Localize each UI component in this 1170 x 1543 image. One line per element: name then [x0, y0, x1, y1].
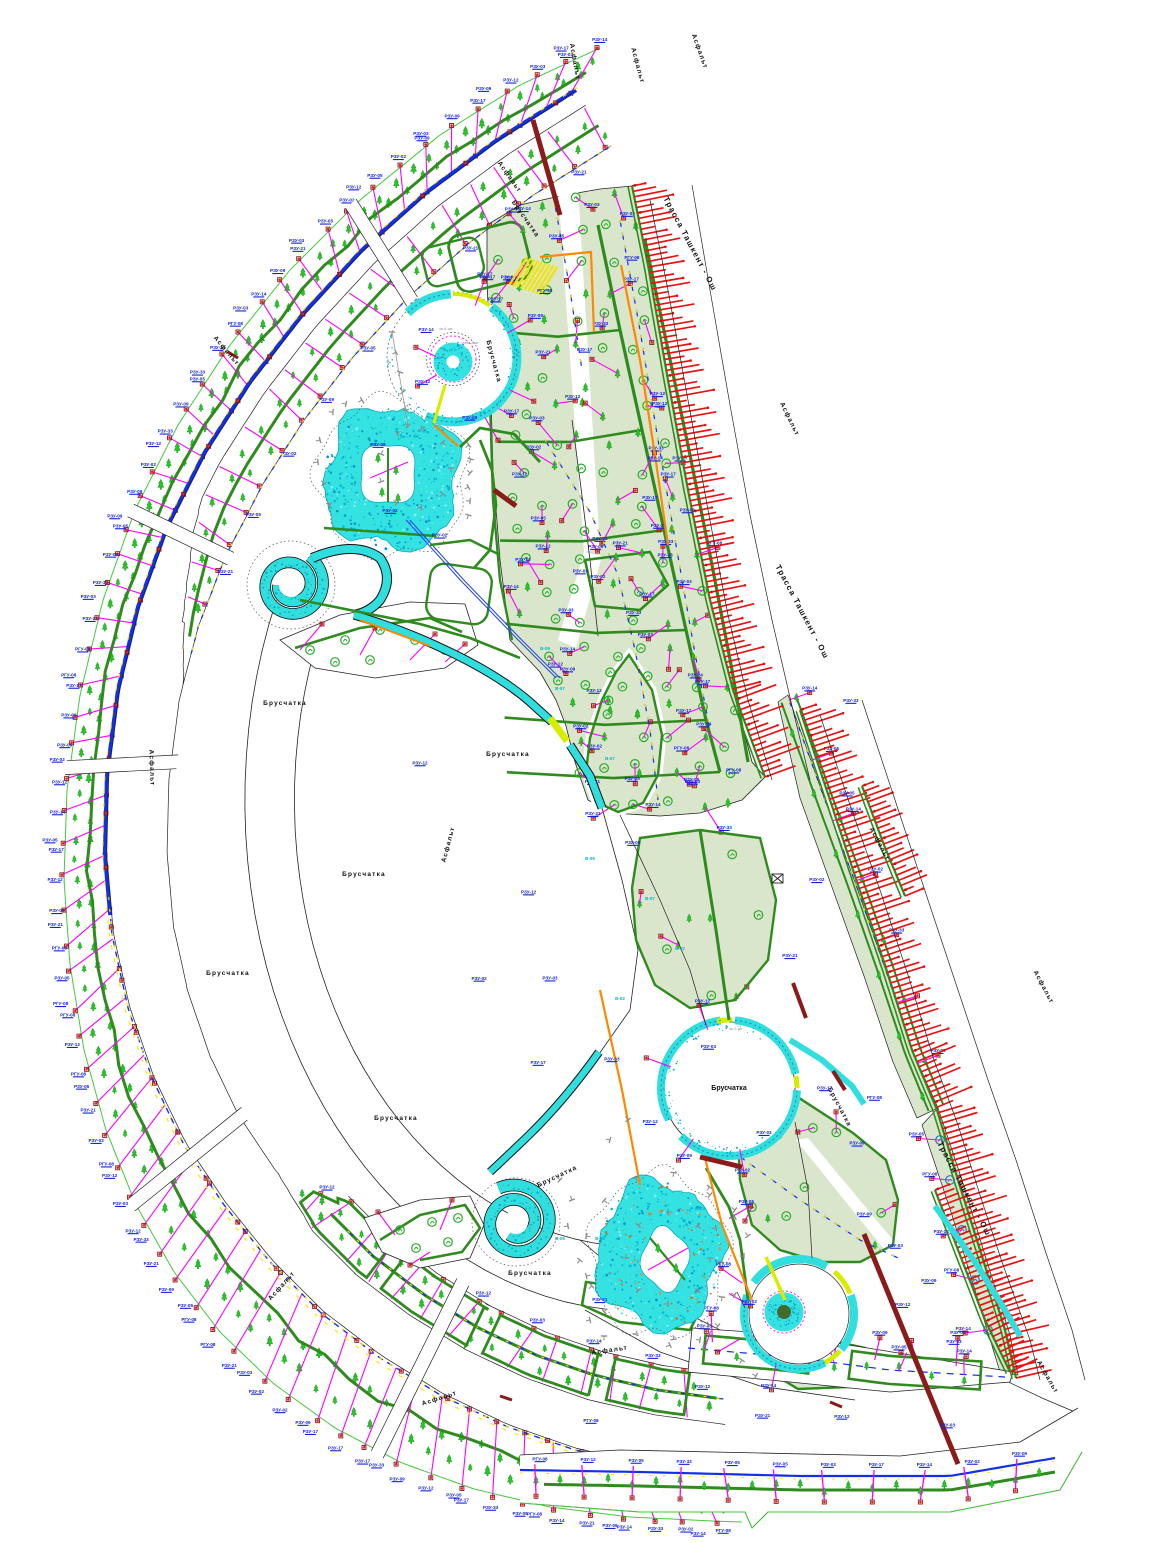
- svg-text:РЗУ-05: РЗУ-05: [839, 791, 855, 796]
- svg-text:РЗУ-21: РЗУ-21: [144, 1261, 160, 1266]
- svg-text:РЗУ-05: РЗУ-05: [49, 908, 65, 913]
- svg-text:РЗУ-02: РЗУ-02: [281, 451, 297, 456]
- svg-text:Брусчатка: Брусчатка: [711, 1085, 747, 1092]
- svg-text:РЗУ-17: РЗУ-17: [303, 1429, 319, 1434]
- svg-text:РГУ-08: РГУ-08: [228, 321, 244, 326]
- svg-text:РЗУ-09: РЗУ-09: [127, 489, 143, 494]
- svg-text:РЗУ-12: РЗУ-12: [102, 1173, 118, 1178]
- svg-text:РГУ-08: РГУ-08: [75, 647, 91, 652]
- svg-text:РЗУ-03: РЗУ-03: [113, 1201, 129, 1206]
- svg-text:РЗУ-12: РЗУ-12: [695, 1384, 711, 1389]
- svg-text:РЗУ-05: РЗУ-05: [367, 173, 383, 178]
- svg-text:РГУ-08: РГУ-08: [99, 1162, 115, 1167]
- svg-text:РЗУ-09: РЗУ-09: [319, 397, 335, 402]
- svg-text:РЗУ-33: РЗУ-33: [676, 1459, 692, 1464]
- svg-text:РЗУ-17: РЗУ-17: [49, 847, 65, 852]
- svg-text:РЗУ-02: РЗУ-02: [272, 1407, 288, 1412]
- svg-text:ск.4 шт: ск.4 шт: [439, 326, 452, 331]
- svg-text:РЗУ-09: РЗУ-09: [872, 1330, 888, 1335]
- svg-text:РЗУ-05: РЗУ-05: [318, 219, 334, 224]
- svg-text:РЗУ-03: РЗУ-03: [680, 507, 696, 512]
- svg-text:РЗУ-14: РЗУ-14: [645, 802, 661, 807]
- svg-text:РЗУ-17: РЗУ-17: [480, 274, 496, 279]
- svg-text:РЗУ-02: РЗУ-02: [590, 574, 606, 579]
- svg-text:РЗУ-05: РЗУ-05: [360, 346, 376, 351]
- svg-text:В-09: В-09: [595, 1236, 605, 1241]
- svg-text:РЗУ-03: РЗУ-03: [542, 976, 558, 981]
- svg-text:Асфальт: Асфальт: [147, 750, 155, 787]
- svg-text:РЗУ-17: РЗУ-17: [817, 1085, 833, 1090]
- svg-text:РЗУ-21: РЗУ-21: [463, 246, 479, 251]
- svg-text:РЗУ-12: РЗУ-12: [346, 185, 362, 190]
- svg-text:Брусчатка: Брусчатка: [508, 1270, 552, 1277]
- svg-text:РЗУ-09: РЗУ-09: [57, 742, 73, 747]
- svg-text:РГУ-08: РГУ-08: [532, 1456, 548, 1461]
- svg-text:РГУ-08: РГУ-08: [716, 1528, 732, 1533]
- svg-text:РЗУ-12: РЗУ-12: [895, 1302, 911, 1307]
- svg-text:РЗУ-12: РЗУ-12: [146, 441, 162, 446]
- svg-text:РЗУ-33: РЗУ-33: [645, 1353, 661, 1358]
- svg-text:РЗУ-33: РЗУ-33: [369, 1463, 385, 1468]
- svg-text:РЗУ-02: РЗУ-02: [249, 1389, 265, 1394]
- svg-text:РЗУ-05: РЗУ-05: [531, 516, 547, 521]
- svg-text:РЗУ-17: РЗУ-17: [676, 708, 692, 713]
- svg-text:РЗУ-33: РЗУ-33: [158, 429, 174, 434]
- svg-text:РГУ-08: РГУ-08: [537, 288, 553, 293]
- svg-text:РЗУ-05: РЗУ-05: [74, 1084, 90, 1089]
- svg-text:РЗУ-12: РЗУ-12: [52, 779, 68, 784]
- svg-text:РЗУ-05: РЗУ-05: [113, 523, 129, 528]
- svg-text:РЗУ-12: РЗУ-12: [503, 78, 519, 83]
- svg-text:РЗУ-21: РЗУ-21: [80, 1108, 96, 1113]
- svg-text:Брусчатка: Брусчатка: [206, 970, 250, 977]
- svg-text:РЗУ-14: РЗУ-14: [251, 292, 267, 297]
- svg-text:РЗУ-12: РЗУ-12: [586, 688, 602, 693]
- svg-text:РЗУ-02: РЗУ-02: [432, 533, 448, 538]
- svg-text:Брусчатка: Брусчатка: [263, 700, 307, 707]
- svg-text:РЗУ-14: РЗУ-14: [549, 1518, 565, 1523]
- svg-text:РЗУ-14: РЗУ-14: [690, 1531, 706, 1536]
- svg-text:РЗУ-03: РЗУ-03: [573, 569, 589, 574]
- svg-text:РЗУ-09: РЗУ-09: [602, 1523, 618, 1528]
- svg-text:РЗУ-09: РЗУ-09: [560, 667, 576, 672]
- svg-text:РЗУ-33: РЗУ-33: [93, 580, 109, 585]
- svg-text:РЗУ-12: РЗУ-12: [548, 662, 564, 667]
- svg-text:РЗУ-09: РЗУ-09: [444, 113, 460, 118]
- svg-text:РЗУ-14: РЗУ-14: [50, 809, 66, 814]
- svg-text:РЗУ-03: РЗУ-03: [676, 579, 692, 584]
- svg-text:РГУ-08: РГУ-08: [867, 1095, 883, 1100]
- svg-text:РЗУ-14: РЗУ-14: [957, 1349, 973, 1354]
- svg-text:РЗУ-05: РЗУ-05: [549, 233, 565, 238]
- svg-text:РЗУ-03: РЗУ-03: [756, 1130, 772, 1135]
- svg-text:РГУ-08: РГУ-08: [52, 946, 68, 951]
- svg-text:РЗУ-17: РЗУ-17: [869, 1462, 885, 1467]
- svg-text:РЗУ-03: РЗУ-03: [233, 306, 249, 311]
- svg-text:РЗУ-05: РЗУ-05: [54, 975, 70, 980]
- svg-text:РЗУ-12: РЗУ-12: [650, 391, 666, 396]
- svg-text:РЗУ-02: РЗУ-02: [592, 536, 608, 541]
- svg-text:РЗУ-03: РЗУ-03: [462, 415, 478, 420]
- svg-text:РЗУ-05: РЗУ-05: [446, 1493, 462, 1498]
- svg-text:РЗУ-03: РЗУ-03: [685, 779, 701, 784]
- svg-text:РЗУ-14: РЗУ-14: [592, 37, 608, 42]
- svg-text:РЗУ-03: РЗУ-03: [237, 1370, 253, 1375]
- svg-text:РЗУ-03: РЗУ-03: [530, 1317, 546, 1322]
- svg-text:РЗУ-14: РЗУ-14: [503, 584, 519, 589]
- svg-text:РЗУ-21: РЗУ-21: [535, 350, 551, 355]
- svg-text:РЗУ-02: РЗУ-02: [391, 154, 407, 159]
- svg-text:В-07: В-07: [555, 686, 565, 691]
- svg-text:РЗУ-21: РЗУ-21: [782, 953, 798, 958]
- svg-text:РЗУ-14: РЗУ-14: [560, 646, 576, 651]
- svg-text:РЗУ-14: РЗУ-14: [617, 1525, 633, 1530]
- svg-text:РЗУ-09: РЗУ-09: [295, 1420, 311, 1425]
- svg-text:РЗУ-02: РЗУ-02: [965, 1459, 981, 1464]
- svg-text:РГУ-08: РГУ-08: [527, 1512, 543, 1517]
- svg-text:РЗУ-09: РЗУ-09: [677, 1153, 693, 1158]
- svg-text:В-07: В-07: [645, 896, 655, 901]
- svg-text:РЗУ-17: РЗУ-17: [639, 592, 655, 597]
- svg-text:РЗУ-12: РЗУ-12: [476, 1291, 492, 1296]
- svg-text:РЗУ-09: РЗУ-09: [159, 1287, 175, 1292]
- svg-text:РЗУ-12: РЗУ-12: [834, 1414, 850, 1419]
- svg-text:РЗУ-17: РЗУ-17: [577, 347, 593, 352]
- svg-text:РЗУ-09: РЗУ-09: [625, 840, 641, 845]
- svg-text:В-03: В-03: [695, 1206, 705, 1211]
- svg-text:РЗУ-12: РЗУ-12: [643, 1119, 659, 1124]
- svg-text:В-02: В-02: [615, 996, 625, 1001]
- svg-text:РЗУ-02: РЗУ-02: [742, 1299, 758, 1304]
- svg-text:РГУ-08: РГУ-08: [181, 1317, 197, 1322]
- svg-text:РЗУ-14: РЗУ-14: [802, 686, 818, 691]
- svg-text:РЗУ-33: РЗУ-33: [593, 321, 609, 326]
- svg-text:РЗУ-12: РЗУ-12: [319, 1185, 335, 1190]
- svg-text:РЗУ-14: РЗУ-14: [586, 1338, 602, 1343]
- svg-text:РЗУ-21: РЗУ-21: [579, 1521, 595, 1526]
- svg-text:РЗУ-14: РЗУ-14: [761, 1383, 777, 1388]
- svg-text:РЗУ-12: РЗУ-12: [521, 890, 537, 895]
- svg-text:В-05: В-05: [555, 1236, 565, 1241]
- svg-text:РЗУ-12: РЗУ-12: [695, 998, 711, 1003]
- svg-text:РЗУ-05: РЗУ-05: [909, 1132, 925, 1137]
- svg-text:РЗУ-17: РЗУ-17: [66, 683, 82, 688]
- svg-text:РЗУ-05: РЗУ-05: [773, 1461, 789, 1466]
- svg-text:РЗУ-21: РЗУ-21: [755, 1413, 771, 1418]
- svg-text:Брусчатка: Брусчатка: [486, 751, 530, 758]
- svg-text:РЗУ-02: РЗУ-02: [471, 976, 487, 981]
- svg-text:РЗУ-21: РЗУ-21: [82, 616, 98, 621]
- svg-text:РЗУ-14: РЗУ-14: [917, 1462, 933, 1467]
- svg-text:РЗУ-05: РЗУ-05: [725, 1460, 741, 1465]
- svg-text:РЗУ-03: РЗУ-03: [88, 1138, 104, 1143]
- svg-text:РЗУ-17: РЗУ-17: [328, 1445, 344, 1450]
- svg-text:РГУ-08: РГУ-08: [726, 768, 742, 773]
- svg-text:В-05: В-05: [585, 856, 595, 861]
- svg-text:РЗУ-09: РЗУ-09: [625, 776, 641, 781]
- svg-text:РЗУ-09: РЗУ-09: [107, 513, 123, 518]
- svg-text:РЗУ-21: РЗУ-21: [592, 1297, 608, 1302]
- svg-text:РЗУ-09: РЗУ-09: [857, 1211, 873, 1216]
- svg-text:РЗУ-09: РЗУ-09: [512, 1511, 528, 1516]
- svg-text:РЗУ-17: РЗУ-17: [488, 297, 504, 302]
- svg-text:РЗУ-09: РЗУ-09: [476, 86, 492, 91]
- svg-text:ск.2 шт: ск.2 шт: [729, 1026, 742, 1031]
- svg-text:РЗУ-05: РЗУ-05: [891, 1345, 907, 1350]
- svg-text:РЗУ-09: РЗУ-09: [1012, 1451, 1028, 1456]
- svg-text:РГУ-08: РГУ-08: [200, 1342, 216, 1347]
- svg-text:РЗУ-21: РЗУ-21: [585, 811, 601, 816]
- svg-text:РЗУ-03: РЗУ-03: [558, 607, 574, 612]
- svg-text:РЗУ-09: РЗУ-09: [950, 1330, 966, 1335]
- svg-text:РЗУ-12: РЗУ-12: [65, 1042, 81, 1047]
- svg-text:РЗУ-05: РЗУ-05: [178, 1303, 194, 1308]
- svg-text:РЗУ-14: РЗУ-14: [418, 327, 434, 332]
- svg-text:РЗУ-33: РЗУ-33: [648, 1526, 664, 1531]
- svg-text:РЗУ-03: РЗУ-03: [413, 131, 429, 136]
- svg-text:РЗУ-05: РЗУ-05: [190, 376, 206, 381]
- svg-text:РЗУ-17: РЗУ-17: [553, 46, 569, 51]
- svg-text:РГУ-08: РГУ-08: [53, 1001, 69, 1006]
- svg-text:РЗУ-14: РЗУ-14: [648, 456, 664, 461]
- svg-text:РЗУ-03: РЗУ-03: [530, 64, 546, 69]
- svg-text:РЗУ-09: РЗУ-09: [528, 313, 544, 318]
- svg-text:РЗУ-03: РЗУ-03: [529, 416, 545, 421]
- svg-text:РЗУ-33: РЗУ-33: [190, 370, 206, 375]
- svg-text:РЗУ-09: РЗУ-09: [389, 1476, 405, 1481]
- svg-text:РЗУ-09: РЗУ-09: [849, 1141, 865, 1146]
- svg-text:РЗУ-03: РЗУ-03: [584, 202, 600, 207]
- svg-text:РЗУ-05: РЗУ-05: [42, 838, 58, 843]
- svg-text:РЗУ-02: РЗУ-02: [339, 198, 355, 203]
- svg-text:В-07: В-07: [605, 756, 615, 761]
- svg-text:РЗУ-12: РЗУ-12: [535, 544, 551, 549]
- svg-text:РЗУ-05: РЗУ-05: [628, 1458, 644, 1463]
- svg-text:В-09: В-09: [540, 646, 550, 651]
- svg-text:РЗУ-33: РЗУ-33: [843, 698, 859, 703]
- svg-text:В-02: В-02: [675, 946, 685, 951]
- svg-text:РЗУ-33: РЗУ-33: [626, 610, 642, 615]
- svg-text:РЗУ-21: РЗУ-21: [48, 922, 64, 927]
- svg-text:РЗУ-17: РЗУ-17: [695, 679, 711, 684]
- svg-text:РЗУ-17: РЗУ-17: [624, 276, 640, 281]
- svg-text:РГУ-08: РГУ-08: [583, 1418, 599, 1423]
- svg-text:РЗУ-12: РЗУ-12: [512, 472, 528, 477]
- svg-text:РЗУ-05: РЗУ-05: [739, 1199, 755, 1204]
- svg-text:РЗУ-33: РЗУ-33: [658, 539, 674, 544]
- svg-text:РЗУ-21: РЗУ-21: [222, 1363, 238, 1368]
- svg-text:РЗУ-03: РЗУ-03: [946, 1339, 962, 1344]
- svg-text:РЗУ-17: РЗУ-17: [642, 495, 658, 500]
- svg-text:РГУ-08: РГУ-08: [922, 1171, 938, 1176]
- svg-text:РЗУ-14: РЗУ-14: [515, 557, 531, 562]
- svg-text:РЗУ-03: РЗУ-03: [289, 238, 305, 243]
- svg-text:РЗУ-17: РЗУ-17: [530, 1060, 546, 1065]
- svg-text:РЗУ-21: РЗУ-21: [290, 246, 306, 251]
- svg-text:РЗУ-02: РЗУ-02: [141, 462, 157, 467]
- svg-text:РЗУ-17: РЗУ-17: [504, 409, 520, 414]
- svg-text:РЗУ-17: РЗУ-17: [661, 472, 677, 477]
- svg-text:Брусчатка: Брусчатка: [374, 1115, 418, 1122]
- svg-text:РЗУ-02: РЗУ-02: [735, 1168, 751, 1173]
- svg-text:РЗУ-33: РЗУ-33: [604, 1056, 620, 1061]
- svg-text:РГУ-08: РГУ-08: [674, 746, 690, 751]
- svg-text:РЗУ-17: РЗУ-17: [470, 98, 486, 103]
- svg-text:РЗУ-09: РЗУ-09: [173, 402, 189, 407]
- svg-text:РЗУ-03: РЗУ-03: [81, 594, 97, 599]
- svg-text:РЗУ-09: РЗУ-09: [103, 552, 119, 557]
- svg-text:РЗУ-02: РЗУ-02: [821, 1462, 837, 1467]
- svg-text:РЗУ-03: РЗУ-03: [701, 1044, 717, 1049]
- svg-text:РГУ-08: РГУ-08: [624, 255, 640, 260]
- svg-text:РЗУ-12: РЗУ-12: [565, 394, 581, 399]
- svg-text:РЗУ-09: РЗУ-09: [370, 442, 386, 447]
- svg-text:РГУ-08: РГУ-08: [71, 1072, 87, 1077]
- svg-text:РГУ-08: РГУ-08: [60, 1012, 76, 1017]
- svg-text:РГУ-08: РГУ-08: [944, 1268, 960, 1273]
- svg-text:РЗУ-02: РЗУ-02: [50, 757, 66, 762]
- svg-text:РЗУ-12: РЗУ-12: [652, 401, 668, 406]
- svg-text:РЗУ-12: РЗУ-12: [125, 1228, 141, 1233]
- svg-text:РЗУ-03: РЗУ-03: [888, 1243, 904, 1248]
- svg-text:РЗУ-02: РЗУ-02: [809, 877, 825, 882]
- svg-text:РЗУ-02: РЗУ-02: [573, 723, 589, 728]
- svg-text:РЗУ-21: РЗУ-21: [613, 541, 629, 546]
- svg-text:РЗУ-03: РЗУ-03: [638, 632, 654, 637]
- svg-text:РЗУ-12: РЗУ-12: [418, 1486, 434, 1491]
- svg-text:Брусчатка: Брусчатка: [342, 871, 386, 878]
- svg-text:РЗУ-33: РЗУ-33: [657, 552, 673, 557]
- svg-text:РЗУ-03: РЗУ-03: [940, 1423, 956, 1428]
- svg-text:РЗУ-12: РЗУ-12: [415, 379, 431, 384]
- svg-text:РЗУ-12: РЗУ-12: [580, 1457, 596, 1462]
- svg-text:РЗУ-12: РЗУ-12: [47, 877, 63, 882]
- svg-text:РЗУ-33: РЗУ-33: [133, 1237, 149, 1242]
- svg-text:РГУ-08: РГУ-08: [61, 672, 77, 677]
- svg-text:РЗУ-12: РЗУ-12: [412, 760, 428, 765]
- svg-text:РЗУ-02: РЗУ-02: [382, 508, 398, 513]
- svg-text:РЗУ-09: РЗУ-09: [61, 713, 77, 718]
- svg-text:РЗУ-33: РЗУ-33: [717, 825, 733, 830]
- svg-text:РГУ-08: РГУ-08: [704, 1306, 720, 1311]
- svg-text:РЗУ-09: РЗУ-09: [270, 268, 286, 273]
- svg-text:РЗУ-14: РЗУ-14: [688, 673, 704, 678]
- svg-text:РЗУ-33: РЗУ-33: [483, 1505, 499, 1510]
- svg-text:урна 2шт: урна 2шт: [462, 340, 479, 345]
- svg-text:РЗУ-09: РЗУ-09: [921, 1278, 937, 1283]
